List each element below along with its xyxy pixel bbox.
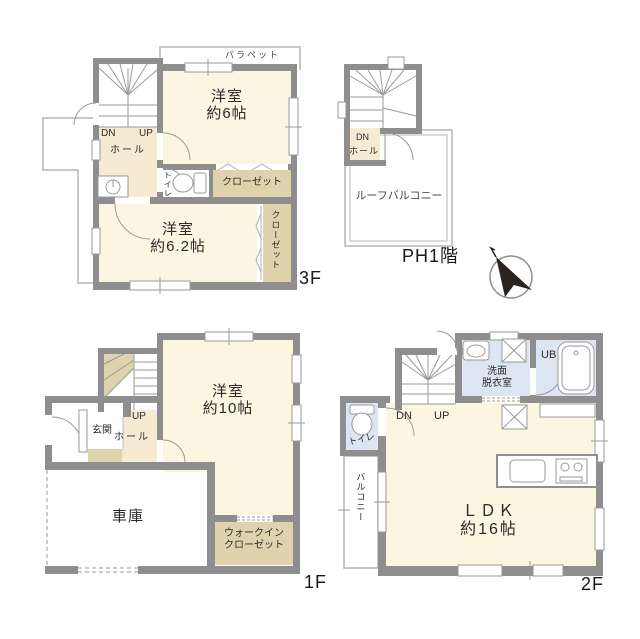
washroom-label: 洗面 脱衣室 [466,366,528,389]
toilet-label-3f: トイレ [163,171,172,197]
washroom-line1: 洗面 [466,366,528,378]
stairs-up-label-3f: UP [139,128,153,140]
roof-balcony-label: ルーフバルコニー [352,190,446,203]
wic-line2: クローゼット [214,540,294,552]
stairs-dn-label-2f: DN [396,410,412,423]
floorplan-drawing [0,0,640,639]
closet-label-3f-side: クローゼット [270,210,280,280]
hall-label-ph1: ホール [349,146,379,156]
bedroom-6-size: 約6帖 [177,105,277,122]
stairs-dn-label-3f: DN [101,128,115,140]
ldk-line2: 約16帖 [439,521,539,539]
stairs-up-label-2f: UP [434,410,449,423]
ldk-line1: ＬＤＫ [439,503,539,521]
room-label-bedroom-62: 洋室 約6.2帖 [128,221,228,256]
room-label-bedroom-6: 洋室 約6帖 [177,88,277,123]
wic-line1: ウォークイン [214,528,294,540]
floor-label-2f: 2F [581,574,604,595]
hall-label-3f: ホール [102,145,154,157]
bedroom-62-size: 約6.2帖 [128,238,228,255]
floorplan-page: パラペット 洋室 約6帖 DN UP ホール トイレ クローゼット 洋室 約6.… [0,0,640,639]
floor-label-3f: 3F [299,268,322,289]
stairs-dn-label-ph1: DN [356,132,369,142]
bedroom-10-size: 約10帖 [178,400,278,417]
floor-label-ph1: PH1階 [402,246,459,267]
walk-in-closet-label: ウォークイン クローゼット [214,528,294,551]
stairs-up-label-1f: UP [132,411,146,423]
balcony-label: バルコニー [355,472,365,562]
entrance-label: 玄関 [92,425,112,437]
bedroom-62-name: 洋室 [128,221,228,238]
bedroom-6-name: 洋室 [177,88,277,105]
compass-icon [490,248,532,298]
unit-bath-label: UB [541,349,556,362]
ldk-label: ＬＤＫ 約16帖 [439,503,539,540]
floor-label-1f: 1F [304,572,327,593]
room-label-bedroom-10: 洋室 約10帖 [178,383,278,418]
washroom-line2: 脱衣室 [466,378,528,390]
garage-label: 車庫 [78,508,178,525]
hall-label-1f: ホール [106,432,158,444]
parapet-label: パラペット [225,50,280,60]
closet-label-3f-top: クローゼット [213,177,291,189]
bedroom-10-name: 洋室 [178,383,278,400]
floor-3f-plan [43,47,302,294]
